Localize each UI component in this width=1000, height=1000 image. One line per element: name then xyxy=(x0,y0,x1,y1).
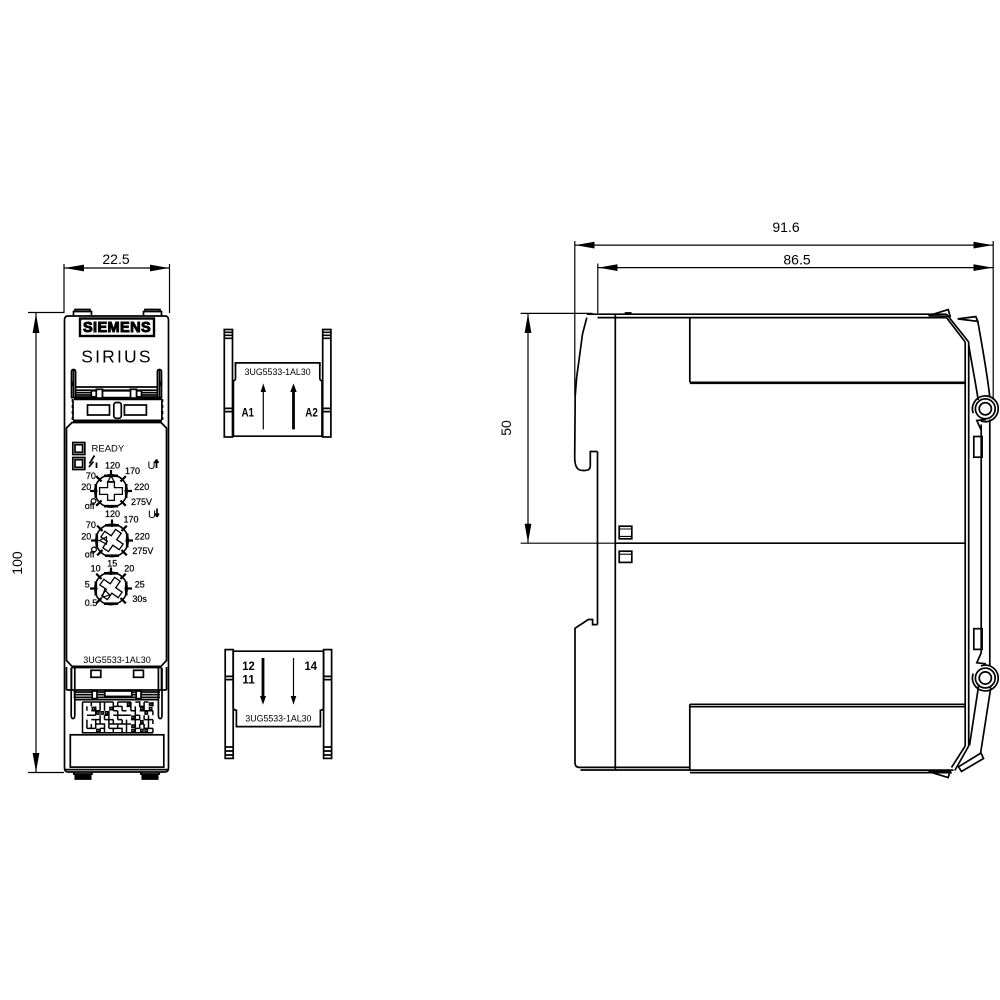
svg-text:20: 20 xyxy=(124,564,134,574)
svg-text:12: 12 xyxy=(242,659,255,673)
svg-text:11: 11 xyxy=(242,672,255,686)
svg-text:120: 120 xyxy=(105,460,120,470)
svg-text:50: 50 xyxy=(498,420,514,436)
svg-text:READY: READY xyxy=(92,444,125,455)
svg-text:220: 220 xyxy=(134,482,149,492)
svg-text:70: 70 xyxy=(86,520,96,530)
svg-text:86.5: 86.5 xyxy=(783,252,810,268)
svg-text:SIRIUS: SIRIUS xyxy=(81,347,153,367)
svg-text:20: 20 xyxy=(81,532,91,542)
svg-text:170: 170 xyxy=(123,515,138,525)
svg-text:275V: 275V xyxy=(132,546,153,556)
svg-text:170: 170 xyxy=(125,466,140,476)
svg-text:22.5: 22.5 xyxy=(102,251,129,267)
svg-text:A1: A1 xyxy=(242,406,255,420)
svg-text:91.6: 91.6 xyxy=(772,219,799,235)
svg-text:100: 100 xyxy=(9,551,25,575)
svg-text:0.5: 0.5 xyxy=(85,598,98,608)
svg-text:U: U xyxy=(148,509,156,521)
svg-text:5: 5 xyxy=(85,580,90,590)
svg-text:25: 25 xyxy=(135,580,145,590)
svg-text:120: 120 xyxy=(105,509,120,519)
svg-text:off: off xyxy=(85,550,95,560)
svg-text:3UG5533-1AL30: 3UG5533-1AL30 xyxy=(83,655,151,665)
svg-text:3UG5533-1AL30: 3UG5533-1AL30 xyxy=(245,367,311,377)
svg-text:275V: 275V xyxy=(131,497,152,507)
svg-text:220: 220 xyxy=(135,532,150,542)
svg-text:3UG5533-1AL30: 3UG5533-1AL30 xyxy=(245,713,311,723)
svg-text:A2: A2 xyxy=(305,406,318,420)
svg-text:10: 10 xyxy=(91,564,101,574)
svg-text:30s: 30s xyxy=(132,594,147,604)
svg-text:20: 20 xyxy=(81,482,91,492)
svg-text:15: 15 xyxy=(107,558,117,568)
svg-text:off: off xyxy=(85,501,95,511)
svg-text:70: 70 xyxy=(86,471,96,481)
svg-text:SIEMENS: SIEMENS xyxy=(83,320,151,336)
svg-text:14: 14 xyxy=(305,659,318,673)
